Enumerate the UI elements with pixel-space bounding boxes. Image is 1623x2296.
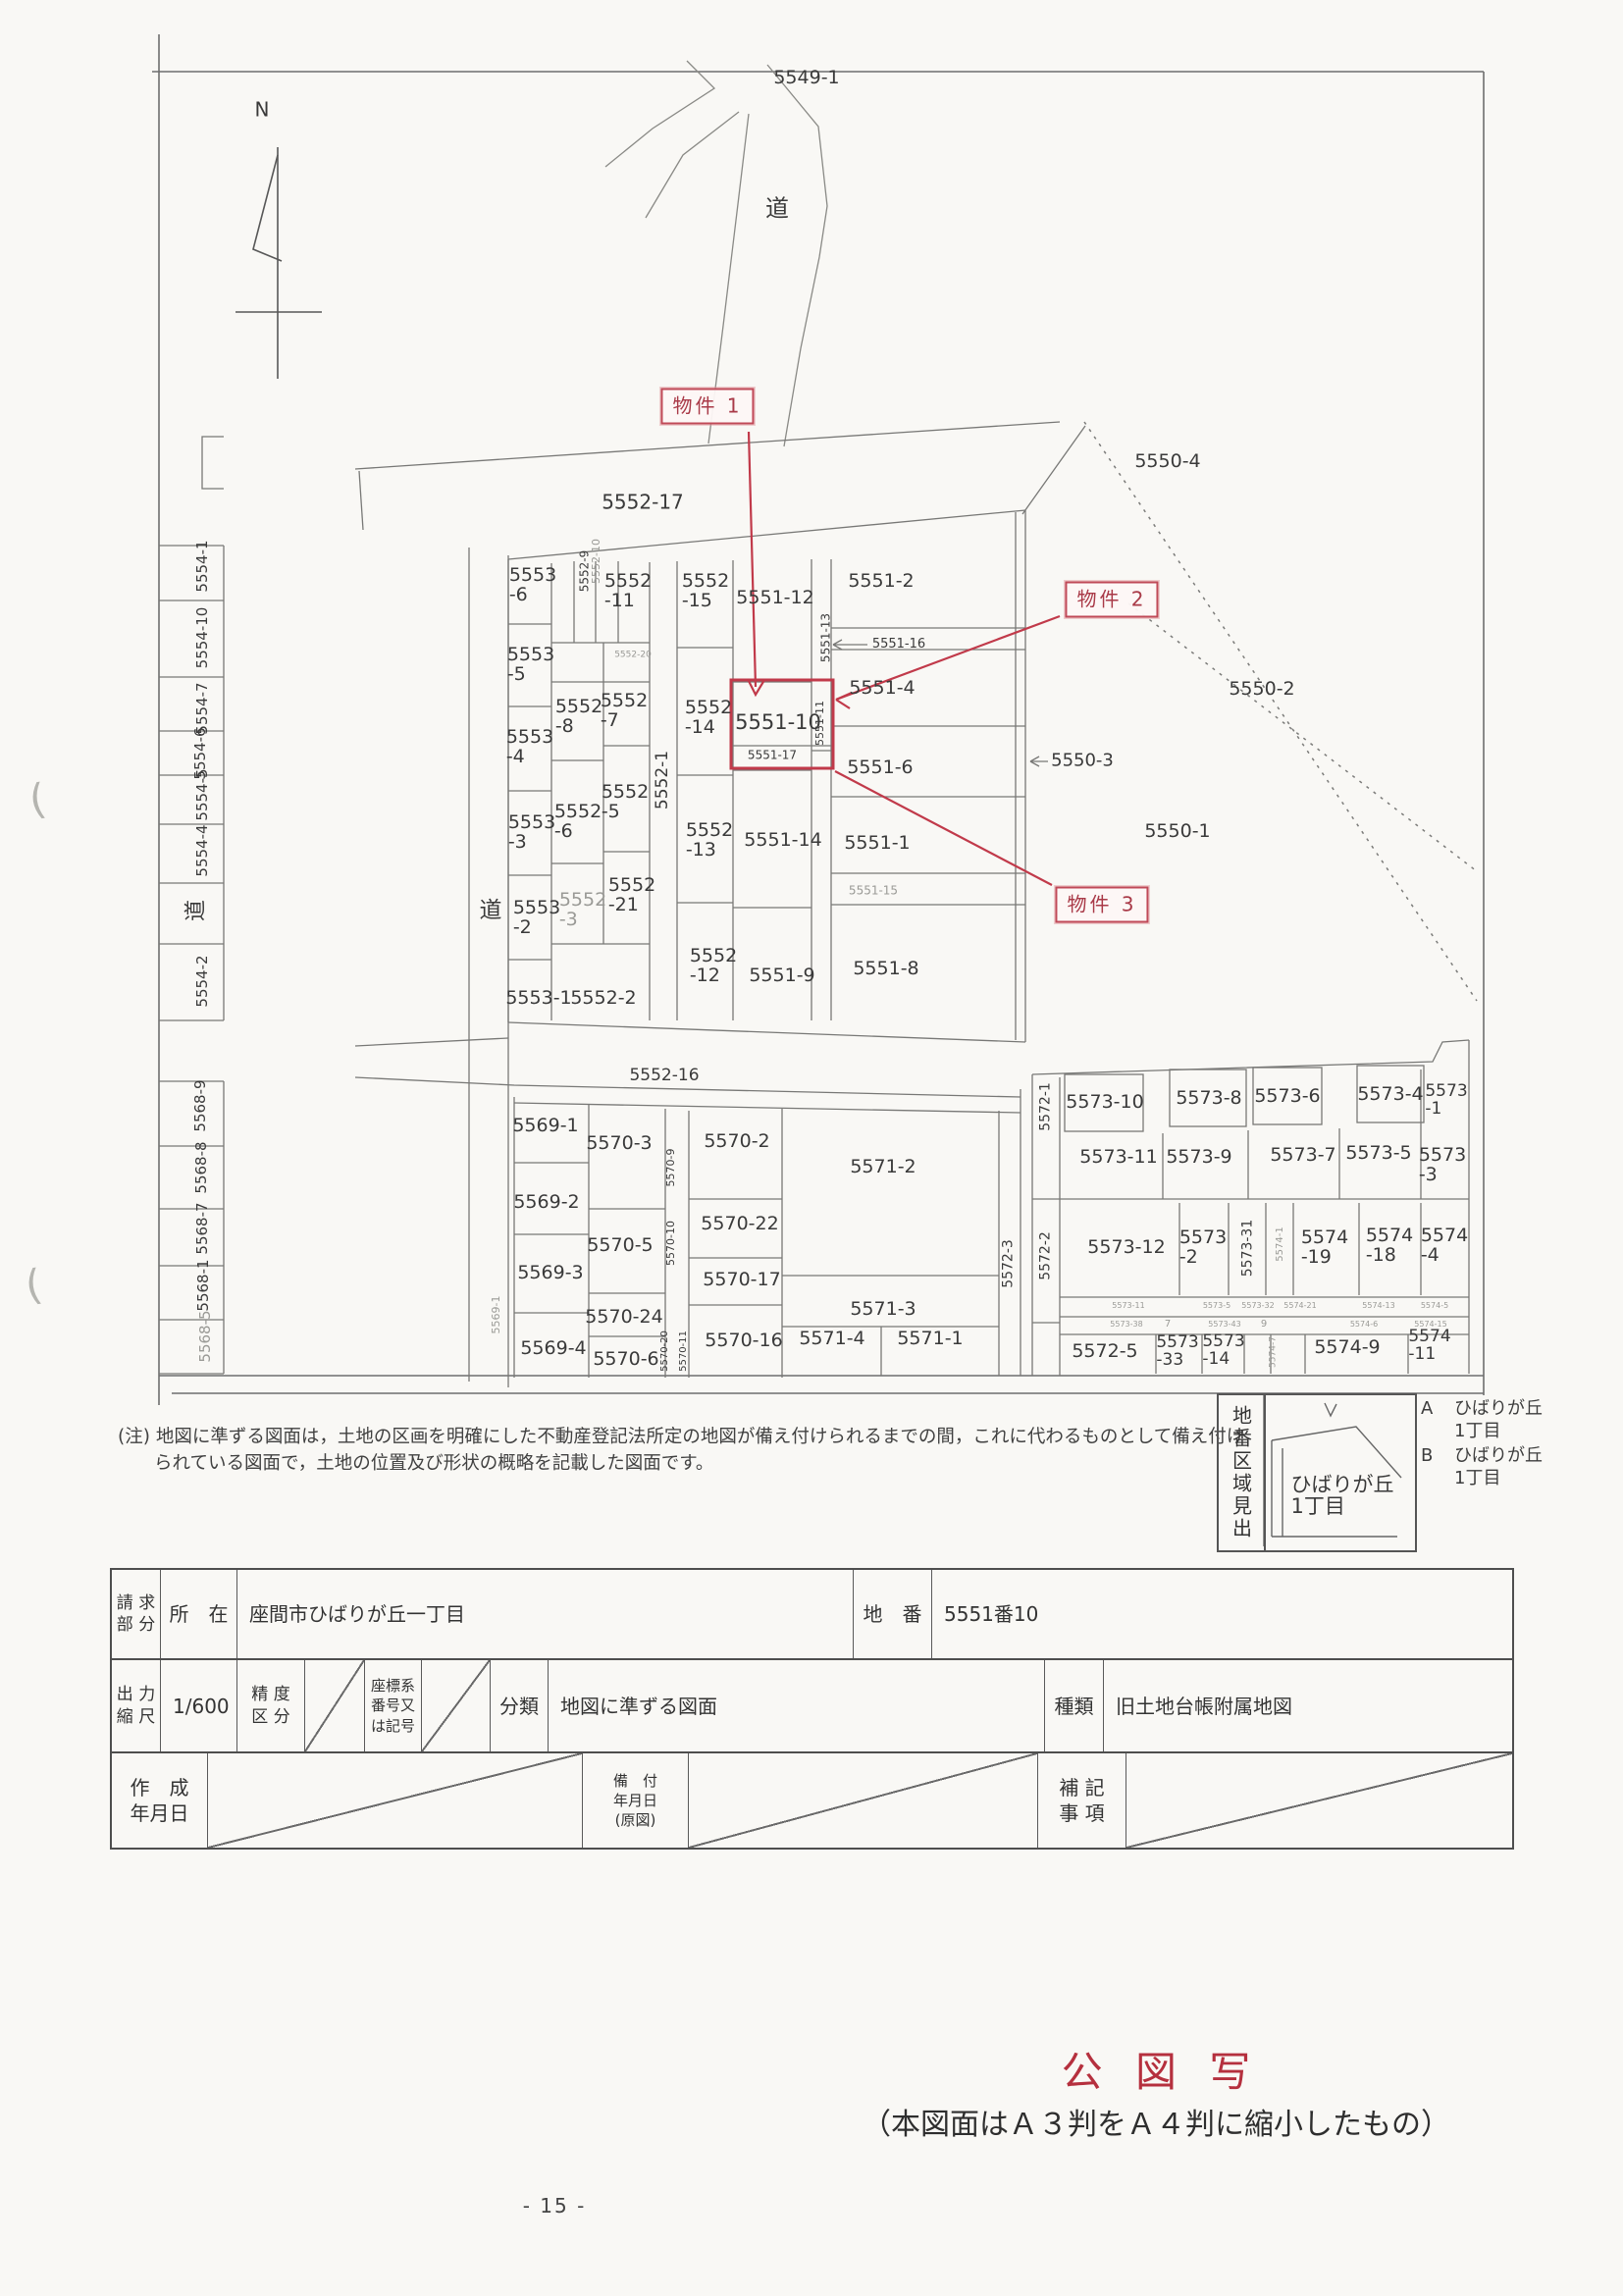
parcel-label: 5570-9 bbox=[665, 1149, 677, 1187]
parcel-label: 5573-11 bbox=[1079, 1148, 1157, 1168]
district-key: B bbox=[1421, 1444, 1454, 1489]
district-value: ひばりが丘 1丁目 bbox=[1454, 1397, 1543, 1442]
parcel-label: 5554-1 bbox=[195, 540, 211, 592]
parcel-label: 5573-6 bbox=[1254, 1087, 1320, 1107]
header-precision-class: 精 度 区 分 bbox=[237, 1660, 305, 1751]
parcel-label: 5550-3 bbox=[1051, 753, 1114, 771]
parcel-label: 5573 -33 bbox=[1156, 1334, 1198, 1370]
parcel-label: 5552-2 bbox=[570, 989, 636, 1009]
parcel-label: 5574-13 bbox=[1362, 1302, 1394, 1310]
district-list-item: B ひばりが丘 1丁目 bbox=[1421, 1444, 1543, 1489]
map-note-line1: (注) 地図に準ずる図面は，土地の区画を明確にした不動産登記法所定の地図が備え付… bbox=[118, 1423, 1244, 1448]
document-subtitle: （本図面はＡ３判をＡ４判に縮小したもの） bbox=[832, 2100, 1480, 2143]
cell-precision-empty bbox=[305, 1660, 365, 1751]
parcel-label: 5573 -2 bbox=[1179, 1228, 1227, 1268]
parcel-label: 5554-10 bbox=[195, 607, 211, 669]
parcel-label: 5570-20 bbox=[660, 1331, 671, 1372]
parcel-label: 5570-2 bbox=[704, 1132, 769, 1152]
parcel-label: 5574-9 bbox=[1314, 1338, 1380, 1358]
parcel-label: 5573 -1 bbox=[1425, 1083, 1467, 1119]
district-index-sketch bbox=[1266, 1395, 1415, 1550]
parcel-label: 5574-21 bbox=[1283, 1302, 1316, 1310]
district-index-box: 地番区域見出 bbox=[1217, 1393, 1417, 1552]
parcel-label: 5572-2 bbox=[1039, 1231, 1054, 1280]
road-label: 道 bbox=[184, 900, 207, 921]
parcel-label: 5551-9 bbox=[749, 966, 814, 986]
parcel-label: 5551-4 bbox=[849, 679, 915, 699]
parcel-label: 5551-6 bbox=[847, 758, 913, 778]
parcel-label: 5551-14 bbox=[744, 831, 821, 851]
parcel-label: 5551-1 bbox=[844, 834, 910, 854]
parcel-label: 5573-11 bbox=[1112, 1302, 1144, 1310]
parcel-label: 5572-5 bbox=[1072, 1342, 1137, 1362]
parcel-label: 5551-8 bbox=[853, 960, 918, 979]
parcel-label: 5552 -8 bbox=[555, 698, 602, 737]
parcel-label: 5551-15 bbox=[849, 885, 898, 898]
value-location: 座間市ひばりが丘一丁目 bbox=[237, 1570, 854, 1658]
parcel-label: 5551-13 bbox=[820, 613, 833, 662]
parcel-label: 5554-5 bbox=[195, 768, 211, 820]
parcel-label: 5570-11 bbox=[679, 1331, 690, 1372]
road-label: 道 bbox=[480, 899, 502, 922]
header-lot-number: 地 番 bbox=[854, 1570, 932, 1658]
header-creation-date: 作 成 年月日 bbox=[112, 1753, 208, 1848]
parcel-label: 5553 -4 bbox=[506, 728, 553, 767]
parcel-label: 5552 -5 bbox=[602, 783, 649, 822]
parcel-label: 5552 -3 bbox=[559, 891, 606, 930]
parcel-label: 5570-17 bbox=[703, 1271, 780, 1290]
parcel-label: 5569-1 bbox=[512, 1117, 578, 1136]
district-index-title: 地番区域見出 bbox=[1228, 1405, 1256, 1540]
cell-coordinate-empty bbox=[422, 1660, 491, 1751]
map-label-layer: 5549-1道N物件 1物件 2物件 35554-15554-105554-75… bbox=[0, 0, 1623, 1570]
cadastral-map-page: 5549-1道N物件 1物件 2物件 35554-15554-105554-75… bbox=[0, 0, 1623, 2296]
table-row-location: 請 求 部 分 所 在 座間市ひばりが丘一丁目 地 番 5551番10 bbox=[112, 1570, 1512, 1658]
parcel-label: 5570-6 bbox=[593, 1350, 658, 1370]
parcel-label: 5574 -4 bbox=[1421, 1226, 1468, 1266]
parcel-label: 5573-43 bbox=[1208, 1321, 1240, 1329]
header-type: 種類 bbox=[1045, 1660, 1104, 1751]
parcel-label: 5552-16 bbox=[629, 1068, 699, 1085]
parcel-label: 5553-1 bbox=[505, 989, 571, 1009]
parcel-label: 5574-5 bbox=[1421, 1302, 1448, 1310]
parcel-label: 5553 -3 bbox=[508, 813, 555, 853]
parcel-label: 5570-5 bbox=[587, 1236, 653, 1256]
annotation-property-1: 物件 1 bbox=[660, 389, 754, 425]
district-index-title-cell: 地番区域見出 bbox=[1219, 1395, 1266, 1550]
parcel-label: 5552 -14 bbox=[685, 699, 732, 738]
parcel-label: 5553 -5 bbox=[507, 646, 554, 685]
header-coordinate-system: 座標系 番号又 は記号 bbox=[365, 1660, 422, 1751]
parcel-label: 5550-2 bbox=[1229, 680, 1294, 700]
district-list: A ひばりが丘 1丁目 B ひばりが丘 1丁目 bbox=[1421, 1397, 1543, 1491]
parcel-label: 5569-4 bbox=[520, 1339, 586, 1359]
header-filing-date: 備 付 年月日 (原図) bbox=[583, 1753, 689, 1848]
parcel-label: 5551-16 bbox=[872, 638, 925, 652]
parcel-label: 5573-7 bbox=[1270, 1146, 1335, 1166]
parcel-label: 5554-2 bbox=[195, 955, 211, 1007]
parcel-label: 5574 -11 bbox=[1408, 1329, 1450, 1364]
parcel-label: 5551-11 bbox=[814, 701, 826, 746]
parcel-label: 5574-6 bbox=[1350, 1321, 1378, 1329]
parcel-label: 5568-7 bbox=[195, 1202, 211, 1254]
parcel-label: 5570-10 bbox=[665, 1221, 677, 1266]
parcel-label: 5568-8 bbox=[194, 1141, 210, 1193]
north-label: N bbox=[255, 100, 270, 121]
parcel-label: 5568-9 bbox=[193, 1079, 209, 1131]
parcel-label: 5549-1 bbox=[773, 69, 839, 88]
parcel-label: 5571-2 bbox=[850, 1158, 916, 1177]
parcel-label: 5569-3 bbox=[517, 1264, 583, 1283]
table-row-classification: 出 力 縮 尺 1/600 精 度 区 分 座標系 番号又 は記号 分類 地図に… bbox=[112, 1658, 1512, 1751]
parcel-label: 5550-1 bbox=[1144, 822, 1210, 842]
header-request-part: 請 求 部 分 bbox=[112, 1570, 161, 1658]
parcel-label: 5570-16 bbox=[705, 1331, 782, 1351]
parcel-label: 5551-10 bbox=[735, 711, 821, 733]
parcel-label: 5573-8 bbox=[1176, 1089, 1241, 1109]
parcel-label: 5573 -3 bbox=[1419, 1146, 1466, 1185]
parcel-label: 5570-3 bbox=[586, 1134, 652, 1154]
parcel-label: 5574 -19 bbox=[1301, 1228, 1348, 1268]
parcel-label: 5573-5 bbox=[1203, 1302, 1230, 1310]
parcel-label: 5551-2 bbox=[848, 572, 914, 592]
header-classification: 分類 bbox=[491, 1660, 549, 1751]
cell-filing-date-empty bbox=[689, 1753, 1038, 1848]
parcel-label: 9 bbox=[1261, 1320, 1267, 1331]
parcel-label: 5569-2 bbox=[513, 1193, 579, 1213]
parcel-label: 5552 -12 bbox=[690, 947, 737, 986]
parcel-label: 5570-24 bbox=[585, 1308, 662, 1328]
parcel-label: 5568-1 bbox=[196, 1259, 212, 1311]
parcel-label: 5554-4 bbox=[195, 824, 211, 876]
parcel-label: 7 bbox=[1165, 1320, 1171, 1331]
parcel-label: 5574 -18 bbox=[1366, 1226, 1413, 1266]
value-lot-number: 5551番10 bbox=[932, 1570, 1512, 1658]
parcel-label: 5551-12 bbox=[736, 589, 813, 608]
parcel-label: 5573 -14 bbox=[1202, 1333, 1244, 1369]
page-number: - 15 - bbox=[491, 2194, 618, 2218]
cell-creation-date-empty bbox=[208, 1753, 583, 1848]
value-type: 旧土地台帳附属地図 bbox=[1104, 1660, 1512, 1751]
parcel-label: 5571-3 bbox=[850, 1300, 916, 1320]
header-output-scale: 出 力 縮 尺 bbox=[112, 1660, 161, 1751]
parcel-label: 5574-15 bbox=[1414, 1321, 1446, 1329]
parcel-label: 5573-12 bbox=[1087, 1238, 1165, 1258]
parcel-label: 5552 -21 bbox=[608, 876, 655, 915]
parcel-label: 5552-20 bbox=[614, 651, 652, 659]
parcel-label: 5573-9 bbox=[1166, 1148, 1231, 1168]
parcel-label: 5552 -7 bbox=[601, 692, 648, 731]
parcel-label: 5552 -11 bbox=[604, 572, 652, 611]
value-classification: 地図に準ずる図面 bbox=[549, 1660, 1045, 1751]
parcel-label: 5553 -2 bbox=[513, 899, 560, 938]
parcel-label: 5573-31 bbox=[1241, 1220, 1256, 1278]
parcel-label: 5552 -13 bbox=[686, 821, 733, 861]
annotation-property-3: 物件 3 bbox=[1055, 887, 1148, 923]
road-label: 道 bbox=[765, 196, 789, 221]
parcel-label: 5552 -15 bbox=[682, 572, 729, 611]
district-key: A bbox=[1421, 1397, 1454, 1442]
parcel-label: 5550-4 bbox=[1134, 452, 1200, 472]
parcel-label: 5573-4 bbox=[1357, 1085, 1423, 1105]
map-note-line2: られている図面で，土地の位置及び形状の概略を記載した図面です。 bbox=[154, 1449, 713, 1475]
parcel-label: 5571-4 bbox=[799, 1330, 864, 1349]
parcel-label: 5568-5 bbox=[198, 1310, 214, 1362]
certificate-info-table: 請 求 部 分 所 在 座間市ひばりが丘一丁目 地 番 5551番10 出 力 … bbox=[110, 1568, 1514, 1850]
parcel-label: 5573-38 bbox=[1110, 1321, 1142, 1329]
parcel-label: 5551-17 bbox=[748, 750, 797, 762]
parcel-label: 5573-10 bbox=[1066, 1093, 1143, 1113]
value-output-scale: 1/600 bbox=[161, 1660, 237, 1751]
parcel-label: 5574-7 bbox=[1269, 1336, 1278, 1368]
district-value: ひばりが丘 1丁目 bbox=[1454, 1444, 1543, 1489]
parcel-label: 5552-1 bbox=[654, 751, 672, 809]
parcel-label: 5552 -6 bbox=[554, 803, 602, 842]
parcel-label: 5552-10 bbox=[591, 539, 602, 584]
header-location: 所 在 bbox=[161, 1570, 237, 1658]
parcel-label: 5552-17 bbox=[602, 493, 684, 513]
parcel-label: 5571-1 bbox=[897, 1330, 963, 1349]
parcel-label: 5569-1 bbox=[491, 1296, 502, 1334]
district-list-item: A ひばりが丘 1丁目 bbox=[1421, 1397, 1543, 1442]
parcel-label: 5572-3 bbox=[1002, 1239, 1017, 1288]
annotation-property-2: 物件 2 bbox=[1065, 582, 1158, 618]
parcel-label: 5570-22 bbox=[701, 1215, 778, 1234]
parcel-label: 5573-32 bbox=[1241, 1302, 1274, 1310]
parcel-label: 5574-1 bbox=[1276, 1226, 1286, 1261]
header-supplementary-notes: 補 記 事 項 bbox=[1038, 1753, 1126, 1848]
table-row-dates: 作 成 年月日 備 付 年月日 (原図) 補 記 事 項 bbox=[112, 1751, 1512, 1848]
parcel-label: 5553 -6 bbox=[509, 566, 556, 605]
parcel-label: 5572-1 bbox=[1039, 1082, 1054, 1131]
parcel-label: 5573-5 bbox=[1345, 1144, 1411, 1164]
cell-supplementary-empty bbox=[1126, 1753, 1512, 1848]
document-title-stamp: 公 図 写 bbox=[916, 2039, 1406, 2099]
